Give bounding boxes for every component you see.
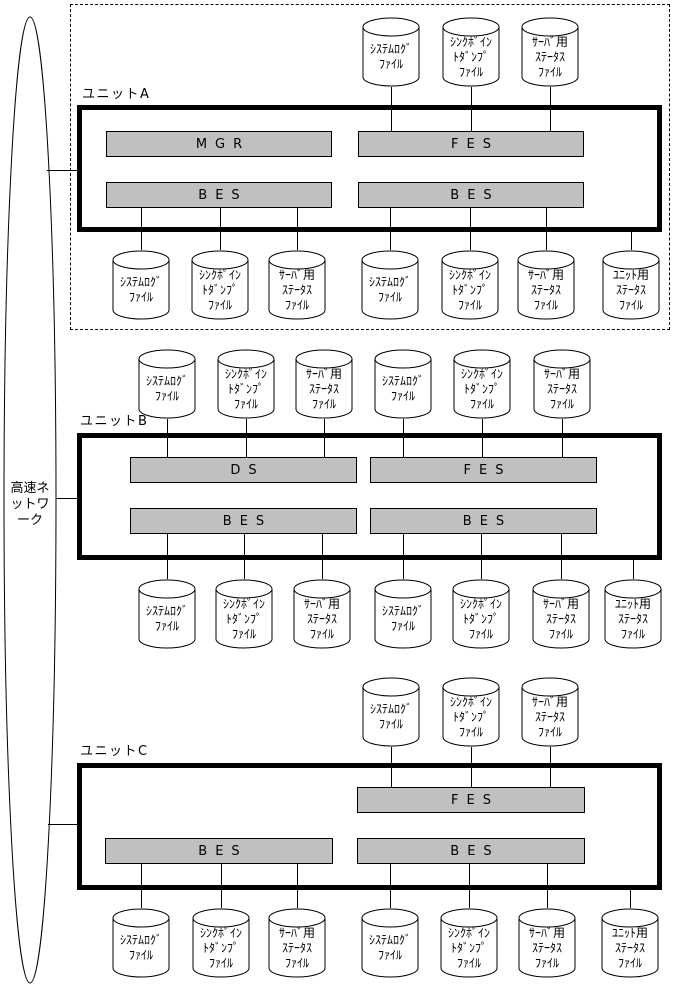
connector-line bbox=[562, 419, 563, 457]
unit-c-box bbox=[77, 763, 662, 890]
connector-line bbox=[244, 534, 245, 579]
file-label-line: ｼﾝｸﾎﾟｲﾝ bbox=[448, 926, 490, 941]
file-label-line: ﾌｧｲﾙ bbox=[458, 298, 482, 313]
system-configuration-diagram: 高速ネ ットワ ーク ユニットAMGRFESBESBESユニットBDSFESBE… bbox=[0, 0, 673, 990]
file-label: ｼﾝｸﾎﾟｲﾝﾄﾀﾞﾝﾌﾟﾌｧｲﾙ bbox=[442, 264, 498, 316]
server-label: BES bbox=[223, 514, 272, 529]
file-label-line: ﾄﾀﾞﾝﾌﾟ bbox=[203, 941, 239, 956]
file-cylinder-system-log: ｼｽﾃﾑﾛｸﾞﾌｧｲﾙ bbox=[138, 579, 196, 649]
file-label: ｻｰﾊﾞ用ｽﾃｰﾀｽﾌｧｲﾙ bbox=[294, 593, 350, 645]
connector-line bbox=[141, 864, 142, 908]
file-label: ｼﾝｸﾎﾟｲﾝﾄﾀﾞﾝﾌﾟﾌｧｲﾙ bbox=[441, 922, 497, 974]
file-cylinder-sync-point-dump: ｼﾝｸﾎﾟｲﾝﾄﾀﾞﾝﾌﾟﾌｧｲﾙ bbox=[441, 250, 499, 320]
file-label-line: ﾌｧｲﾙ bbox=[129, 948, 153, 963]
server-box-bes-unit-b: BES bbox=[370, 508, 597, 534]
file-cylinder-unit-status: ﾕﾆｯﾄ用ｽﾃｰﾀｽﾌｧｲﾙ bbox=[604, 579, 662, 649]
file-label-line: ﾌｧｲﾙ bbox=[459, 725, 483, 740]
network-label: 高速ネ ットワ ーク bbox=[4, 481, 56, 529]
file-label-line: ｼｽﾃﾑﾛｸﾞ bbox=[382, 604, 424, 619]
unit-c-label: ユニットC bbox=[80, 740, 149, 759]
connector-line bbox=[141, 208, 142, 250]
file-label: ｼｽﾃﾑﾛｸﾞﾌｧｲﾙ bbox=[362, 922, 418, 974]
file-label-line: ﾌｧｲﾙ bbox=[129, 290, 153, 305]
file-label-line: ｽﾃｰﾀｽ bbox=[282, 283, 312, 298]
connector-line bbox=[391, 747, 392, 787]
file-cylinder-system-log: ｼｽﾃﾑﾛｸﾞﾌｧｲﾙ bbox=[374, 579, 432, 649]
connector-line bbox=[470, 208, 471, 250]
file-label-line: ｼﾝｸﾎﾟｲﾝ bbox=[199, 268, 241, 283]
file-label: ｻｰﾊﾞ用ｽﾃｰﾀｽﾌｧｲﾙ bbox=[519, 922, 575, 974]
file-label-line: ﾄﾀﾞﾝﾌﾟ bbox=[453, 50, 489, 65]
file-label-line: ﾄﾀﾞﾝﾌﾟ bbox=[463, 612, 499, 627]
file-label-line: ｼﾝｸﾎﾟｲﾝ bbox=[450, 35, 492, 50]
file-label-line: ﾌｧｲﾙ bbox=[470, 397, 494, 412]
file-cylinder-sync-point-dump: ｼﾝｸﾎﾟｲﾝﾄﾀﾞﾝﾌﾟﾌｧｲﾙ bbox=[192, 908, 250, 978]
server-label: FES bbox=[451, 137, 499, 152]
file-cylinder-server-status: ｻｰﾊﾞ用ｽﾃｰﾀｽﾌｧｲﾙ bbox=[293, 579, 351, 649]
file-label-line: ﾌｧｲﾙ bbox=[391, 619, 415, 634]
file-label-line: ｽﾃｰﾀｽ bbox=[535, 50, 565, 65]
file-label-line: ﾌｧｲﾙ bbox=[619, 298, 643, 313]
connector-line bbox=[630, 888, 631, 908]
server-label: MGR bbox=[196, 137, 250, 152]
server-label: BES bbox=[450, 188, 499, 203]
file-cylinder-server-status: ｻｰﾊﾞ用ｽﾃｰﾀｽﾌｧｲﾙ bbox=[268, 250, 326, 320]
file-cylinder-unit-status: ﾕﾆｯﾄ用ｽﾃｰﾀｽﾌｧｲﾙ bbox=[601, 908, 659, 978]
file-cylinder-system-log: ｼｽﾃﾑﾛｸﾞﾌｧｲﾙ bbox=[112, 250, 170, 320]
file-label-line: ﾌｧｲﾙ bbox=[549, 627, 573, 642]
file-label: ｻｰﾊﾞ用ｽﾃｰﾀｽﾌｧｲﾙ bbox=[518, 264, 574, 316]
file-label-line: ﾄﾀﾞﾝﾌﾟ bbox=[451, 941, 487, 956]
file-label-line: ｼｽﾃﾑﾛｸﾞ bbox=[370, 702, 412, 717]
file-label-line: ﾌｧｲﾙ bbox=[459, 65, 483, 80]
file-label-line: ｻｰﾊﾞ用 bbox=[528, 268, 564, 283]
connector-line bbox=[403, 419, 404, 457]
file-label: ｻｰﾊﾞ用ｽﾃｰﾀｽﾌｧｲﾙ bbox=[296, 363, 352, 415]
connector-line bbox=[547, 864, 548, 908]
file-label-line: ｼﾝｸﾎﾟｲﾝ bbox=[200, 926, 242, 941]
file-label-line: ﾌｧｲﾙ bbox=[457, 956, 481, 971]
file-label-line: ｽﾃｰﾀｽ bbox=[546, 612, 576, 627]
connector-line bbox=[167, 419, 168, 457]
unit-b-label: ユニットB bbox=[80, 410, 148, 429]
file-label-line: ｼﾝｸﾎﾟｲﾝ bbox=[461, 367, 503, 382]
file-label: ｻｰﾊﾞ用ｽﾃｰﾀｽﾌｧｲﾙ bbox=[269, 264, 325, 316]
file-label-line: ｼｽﾃﾑﾛｸﾞ bbox=[146, 374, 188, 389]
file-label-line: ﾌｧｲﾙ bbox=[232, 627, 256, 642]
file-label-line: ﾌｧｲﾙ bbox=[378, 948, 402, 963]
file-label-line: ｽﾃｰﾀｽ bbox=[618, 612, 648, 627]
server-box-fes-unit-b: FES bbox=[370, 457, 597, 483]
file-label: ｼﾝｸﾎﾟｲﾝﾄﾀﾞﾝﾌﾟﾌｧｲﾙ bbox=[454, 363, 510, 415]
file-label: ｻｰﾊﾞ用ｽﾃｰﾀｽﾌｧｲﾙ bbox=[522, 31, 578, 83]
file-label-line: ｻｰﾊﾞ用 bbox=[306, 367, 342, 382]
file-label-line: ﾄﾀﾞﾝﾌﾟ bbox=[228, 382, 264, 397]
connector-line bbox=[481, 534, 482, 579]
file-label-line: ｻｰﾊﾞ用 bbox=[532, 695, 568, 710]
file-label-line: ｻｰﾊﾞ用 bbox=[543, 597, 579, 612]
file-cylinder-server-status: ｻｰﾊﾞ用ｽﾃｰﾀｽﾌｧｲﾙ bbox=[295, 349, 353, 419]
file-label: ｻｰﾊﾞ用ｽﾃｰﾀｽﾌｧｲﾙ bbox=[534, 363, 590, 415]
server-box-bes-unit-c: BES bbox=[357, 838, 585, 864]
file-cylinder-unit-status: ﾕﾆｯﾄ用ｽﾃｰﾀｽﾌｧｲﾙ bbox=[602, 250, 660, 320]
file-label-line: ﾌｧｲﾙ bbox=[391, 389, 415, 404]
file-cylinder-system-log: ｼｽﾃﾑﾛｸﾞﾌｧｲﾙ bbox=[362, 677, 420, 747]
connector-line bbox=[246, 419, 247, 457]
file-cylinder-system-log: ｼｽﾃﾑﾛｸﾞﾌｧｲﾙ bbox=[112, 908, 170, 978]
file-cylinder-system-log: ｼｽﾃﾑﾛｸﾞﾌｧｲﾙ bbox=[361, 250, 419, 320]
file-label-line: ﾌｧｲﾙ bbox=[378, 290, 402, 305]
file-label: ﾕﾆｯﾄ用ｽﾃｰﾀｽﾌｧｲﾙ bbox=[602, 922, 658, 974]
file-label: ｻｰﾊﾞ用ｽﾃｰﾀｽﾌｧｲﾙ bbox=[269, 922, 325, 974]
file-cylinder-sync-point-dump: ｼﾝｸﾎﾟｲﾝﾄﾀﾞﾝﾌﾟﾌｧｲﾙ bbox=[217, 349, 275, 419]
file-label: ｼｽﾃﾑﾛｸﾞﾌｧｲﾙ bbox=[113, 264, 169, 316]
file-label-line: ｼﾝｸﾎﾟｲﾝ bbox=[450, 695, 492, 710]
file-label-line: ﾌｧｲﾙ bbox=[234, 397, 258, 412]
server-label: BES bbox=[198, 844, 247, 859]
connector-line bbox=[633, 558, 634, 579]
file-label-line: ﾌｧｲﾙ bbox=[155, 619, 179, 634]
file-label-line: ﾕﾆｯﾄ用 bbox=[615, 597, 651, 612]
file-label-line: ﾌｧｲﾙ bbox=[310, 627, 334, 642]
file-label-line: ｽﾃｰﾀｽ bbox=[615, 941, 645, 956]
file-cylinder-system-log: ｼｽﾃﾑﾛｸﾞﾌｧｲﾙ bbox=[361, 908, 419, 978]
server-box-bes-unit-c: BES bbox=[105, 838, 333, 864]
file-label: ｼﾝｸﾎﾟｲﾝﾄﾀﾞﾝﾌﾟﾌｧｲﾙ bbox=[216, 593, 272, 645]
file-cylinder-system-log: ｼｽﾃﾑﾛｸﾞﾌｧｲﾙ bbox=[374, 349, 432, 419]
file-label-line: ﾌｧｲﾙ bbox=[285, 956, 309, 971]
file-cylinder-sync-point-dump: ｼﾝｸﾎﾟｲﾝﾄﾀﾞﾝﾌﾟﾌｧｲﾙ bbox=[452, 579, 510, 649]
connector-line bbox=[550, 87, 551, 131]
file-label: ｻｰﾊﾞ用ｽﾃｰﾀｽﾌｧｲﾙ bbox=[533, 593, 589, 645]
file-label-line: ﾌｧｲﾙ bbox=[379, 57, 403, 72]
connector-line bbox=[297, 208, 298, 250]
connector-line bbox=[390, 864, 391, 908]
file-label-line: ﾄﾀﾞﾝﾌﾟ bbox=[226, 612, 262, 627]
connector-line bbox=[221, 864, 222, 908]
connector-line bbox=[403, 534, 404, 579]
file-cylinder-server-status: ｻｰﾊﾞ用ｽﾃｰﾀｽﾌｧｲﾙ bbox=[533, 349, 591, 419]
file-cylinder-server-status: ｻｰﾊﾞ用ｽﾃｰﾀｽﾌｧｲﾙ bbox=[517, 250, 575, 320]
file-cylinder-sync-point-dump: ｼﾝｸﾎﾟｲﾝﾄﾀﾞﾝﾌﾟﾌｧｲﾙ bbox=[453, 349, 511, 419]
file-label: ｼﾝｸﾎﾟｲﾝﾄﾀﾞﾝﾌﾟﾌｧｲﾙ bbox=[193, 922, 249, 974]
file-label-line: ﾌｧｲﾙ bbox=[621, 627, 645, 642]
connector-line bbox=[391, 87, 392, 131]
file-cylinder-sync-point-dump: ｼﾝｸﾎﾟｲﾝﾄﾀﾞﾝﾌﾟﾌｧｲﾙ bbox=[440, 908, 498, 978]
connector-line bbox=[220, 208, 221, 250]
file-label-line: ﾌｧｲﾙ bbox=[155, 389, 179, 404]
file-label-line: ﾄﾀﾞﾝﾌﾟ bbox=[453, 710, 489, 725]
connector-line bbox=[322, 534, 323, 579]
file-label-line: ｼﾝｸﾎﾟｲﾝ bbox=[449, 268, 491, 283]
file-label-line: ﾌｧｲﾙ bbox=[538, 725, 562, 740]
network-label-line: 高速ネ bbox=[4, 481, 56, 497]
connector-line bbox=[56, 498, 79, 499]
server-box-mgr-unit-a: MGR bbox=[106, 131, 332, 157]
file-cylinder-sync-point-dump: ｼﾝｸﾎﾟｲﾝﾄﾀﾞﾝﾌﾟﾌｧｲﾙ bbox=[215, 579, 273, 649]
file-label-line: ｼｽﾃﾑﾛｸﾞ bbox=[370, 42, 412, 57]
server-box-ds-unit-b: DS bbox=[130, 457, 357, 483]
server-box-bes-unit-a: BES bbox=[106, 182, 332, 208]
file-label-line: ｼｽﾃﾑﾛｸﾞ bbox=[120, 275, 162, 290]
file-label-line: ｼﾝｸﾎﾟｲﾝ bbox=[460, 597, 502, 612]
file-label-line: ｼｽﾃﾑﾛｸﾞ bbox=[382, 374, 424, 389]
server-box-bes-unit-a: BES bbox=[358, 182, 584, 208]
file-label-line: ｼｽﾃﾑﾛｸﾞ bbox=[146, 604, 188, 619]
file-label-line: ﾌｧｲﾙ bbox=[538, 65, 562, 80]
file-cylinder-server-status: ｻｰﾊﾞ用ｽﾃｰﾀｽﾌｧｲﾙ bbox=[521, 17, 579, 87]
file-label: ｼｽﾃﾑﾛｸﾞﾌｧｲﾙ bbox=[375, 363, 431, 415]
file-label-line: ﾕﾆｯﾄ用 bbox=[612, 926, 648, 941]
connector-line bbox=[324, 419, 325, 457]
connector-line bbox=[471, 87, 472, 131]
file-cylinder-server-status: ｻｰﾊﾞ用ｽﾃｰﾀｽﾌｧｲﾙ bbox=[532, 579, 590, 649]
network-label-line: ーク bbox=[4, 513, 56, 529]
file-cylinder-sync-point-dump: ｼﾝｸﾎﾟｲﾝﾄﾀﾞﾝﾌﾟﾌｧｲﾙ bbox=[442, 677, 500, 747]
connector-line bbox=[546, 208, 547, 250]
file-label-line: ﾄﾀﾞﾝﾌﾟ bbox=[452, 283, 488, 298]
file-label: ｼﾝｸﾎﾟｲﾝﾄﾀﾞﾝﾌﾟﾌｧｲﾙ bbox=[192, 264, 248, 316]
file-cylinder-server-status: ｻｰﾊﾞ用ｽﾃｰﾀｽﾌｧｲﾙ bbox=[521, 677, 579, 747]
file-label-line: ﾌｧｲﾙ bbox=[618, 956, 642, 971]
file-label-line: ﾌｧｲﾙ bbox=[209, 956, 233, 971]
connector-line bbox=[390, 208, 391, 250]
file-label: ｻｰﾊﾞ用ｽﾃｰﾀｽﾌｧｲﾙ bbox=[522, 691, 578, 743]
file-label-line: ﾌｧｲﾙ bbox=[469, 627, 493, 642]
file-label-line: ｻｰﾊﾞ用 bbox=[532, 35, 568, 50]
connector-line bbox=[167, 534, 168, 579]
file-label-line: ｻｰﾊﾞ用 bbox=[304, 597, 340, 612]
connector-line bbox=[48, 824, 79, 825]
file-label: ｼｽﾃﾑﾛｸﾞﾌｧｲﾙ bbox=[113, 922, 169, 974]
file-label: ｼﾝｸﾎﾟｲﾝﾄﾀﾞﾝﾌﾟﾌｧｲﾙ bbox=[443, 691, 499, 743]
file-label: ﾕﾆｯﾄ用ｽﾃｰﾀｽﾌｧｲﾙ bbox=[605, 593, 661, 645]
file-label: ｼｽﾃﾑﾛｸﾞﾌｧｲﾙ bbox=[363, 31, 419, 83]
file-label: ｼﾝｸﾎﾟｲﾝﾄﾀﾞﾝﾌﾟﾌｧｲﾙ bbox=[453, 593, 509, 645]
server-box-fes-unit-c: FES bbox=[357, 787, 585, 813]
connector-line bbox=[469, 864, 470, 908]
file-label-line: ﾌｧｲﾙ bbox=[379, 717, 403, 732]
file-label-line: ｼｽﾃﾑﾛｸﾞ bbox=[369, 933, 411, 948]
server-label: DS bbox=[230, 463, 264, 478]
file-label: ｼｽﾃﾑﾛｸﾞﾌｧｲﾙ bbox=[139, 593, 195, 645]
server-label: BES bbox=[198, 188, 247, 203]
connector-line bbox=[550, 747, 551, 787]
file-label-line: ｽﾃｰﾀｽ bbox=[616, 283, 646, 298]
file-label: ｼｽﾃﾑﾛｸﾞﾌｧｲﾙ bbox=[375, 593, 431, 645]
file-label-line: ｼｽﾃﾑﾛｸﾞ bbox=[369, 275, 411, 290]
file-cylinder-sync-point-dump: ｼﾝｸﾎﾟｲﾝﾄﾀﾞﾝﾌﾟﾌｧｲﾙ bbox=[442, 17, 500, 87]
file-label: ｼﾝｸﾎﾟｲﾝﾄﾀﾞﾝﾌﾟﾌｧｲﾙ bbox=[443, 31, 499, 83]
file-label-line: ﾌｧｲﾙ bbox=[550, 397, 574, 412]
connector-line bbox=[471, 747, 472, 787]
server-label: FES bbox=[464, 463, 512, 478]
file-label-line: ｽﾃｰﾀｽ bbox=[531, 283, 561, 298]
file-label-line: ｽﾃｰﾀｽ bbox=[535, 710, 565, 725]
connector-line bbox=[482, 419, 483, 457]
unit-a-box bbox=[77, 105, 662, 232]
file-label-line: ｽﾃｰﾀｽ bbox=[532, 941, 562, 956]
file-label-line: ｻｰﾊﾞ用 bbox=[279, 926, 315, 941]
file-label-line: ｻｰﾊﾞ用 bbox=[529, 926, 565, 941]
file-label-line: ﾌｧｲﾙ bbox=[534, 298, 558, 313]
file-label-line: ｽﾃｰﾀｽ bbox=[307, 612, 337, 627]
server-label: FES bbox=[451, 793, 499, 808]
file-label: ｼｽﾃﾑﾛｸﾞﾌｧｲﾙ bbox=[363, 691, 419, 743]
file-label: ｼｽﾃﾑﾛｸﾞﾌｧｲﾙ bbox=[139, 363, 195, 415]
file-cylinder-server-status: ｻｰﾊﾞ用ｽﾃｰﾀｽﾌｧｲﾙ bbox=[518, 908, 576, 978]
server-box-fes-unit-a: FES bbox=[358, 131, 584, 157]
file-label-line: ｻｰﾊﾞ用 bbox=[544, 367, 580, 382]
file-cylinder-sync-point-dump: ｼﾝｸﾎﾟｲﾝﾄﾀﾞﾝﾌﾟﾌｧｲﾙ bbox=[191, 250, 249, 320]
connector-line bbox=[297, 864, 298, 908]
unit-a-label: ユニットA bbox=[82, 83, 150, 102]
file-label-line: ｼｽﾃﾑﾛｸﾞ bbox=[120, 933, 162, 948]
file-label-line: ﾄﾀﾞﾝﾌﾟ bbox=[202, 283, 238, 298]
file-cylinder-server-status: ｻｰﾊﾞ用ｽﾃｰﾀｽﾌｧｲﾙ bbox=[268, 908, 326, 978]
file-cylinder-system-log: ｼｽﾃﾑﾛｸﾞﾌｧｲﾙ bbox=[362, 17, 420, 87]
connector-line bbox=[47, 170, 79, 171]
server-label: BES bbox=[463, 514, 512, 529]
file-label-line: ｽﾃｰﾀｽ bbox=[547, 382, 577, 397]
file-label: ﾕﾆｯﾄ用ｽﾃｰﾀｽﾌｧｲﾙ bbox=[603, 264, 659, 316]
file-label-line: ﾌｧｲﾙ bbox=[535, 956, 559, 971]
file-label-line: ﾌｧｲﾙ bbox=[285, 298, 309, 313]
file-label-line: ﾌｧｲﾙ bbox=[312, 397, 336, 412]
connector-line bbox=[631, 230, 632, 250]
network-label-line: ットワ bbox=[4, 497, 56, 513]
file-label-line: ｻｰﾊﾞ用 bbox=[279, 268, 315, 283]
file-label-line: ｼﾝｸﾎﾟｲﾝ bbox=[225, 367, 267, 382]
file-label-line: ｼﾝｸﾎﾟｲﾝ bbox=[223, 597, 265, 612]
file-label-line: ﾌｧｲﾙ bbox=[208, 298, 232, 313]
connector-line bbox=[561, 534, 562, 579]
file-label-line: ｽﾃｰﾀｽ bbox=[282, 941, 312, 956]
file-label: ｼｽﾃﾑﾛｸﾞﾌｧｲﾙ bbox=[362, 264, 418, 316]
file-label-line: ｽﾃｰﾀｽ bbox=[309, 382, 339, 397]
file-label-line: ﾕﾆｯﾄ用 bbox=[613, 268, 649, 283]
file-label-line: ﾄﾀﾞﾝﾌﾟ bbox=[464, 382, 500, 397]
unit-b-box bbox=[77, 433, 662, 560]
file-cylinder-system-log: ｼｽﾃﾑﾛｸﾞﾌｧｲﾙ bbox=[138, 349, 196, 419]
server-box-bes-unit-b: BES bbox=[130, 508, 357, 534]
server-label: BES bbox=[450, 844, 499, 859]
file-label: ｼﾝｸﾎﾟｲﾝﾄﾀﾞﾝﾌﾟﾌｧｲﾙ bbox=[218, 363, 274, 415]
